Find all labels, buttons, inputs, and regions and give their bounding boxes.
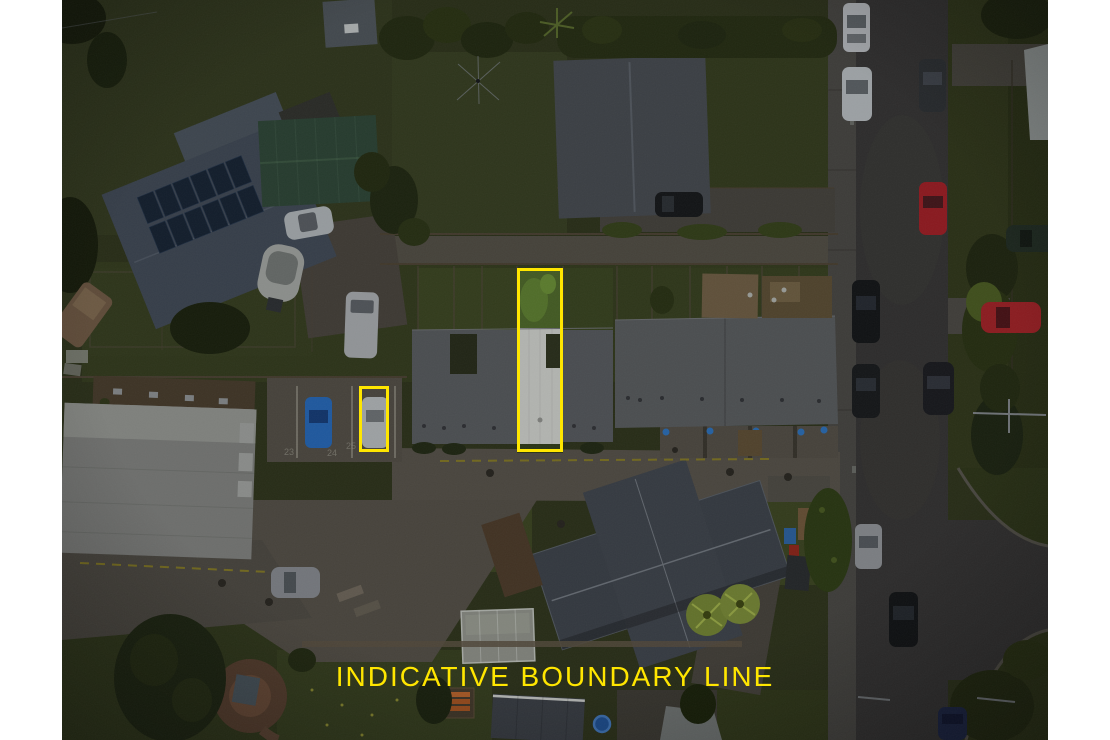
- aerial-photo-scene: 23 24 25: [62, 0, 1048, 740]
- aerial-photo: 23 24 25: [62, 0, 1048, 740]
- page: 23 24 25: [0, 0, 1110, 740]
- film-grain: [62, 0, 1048, 740]
